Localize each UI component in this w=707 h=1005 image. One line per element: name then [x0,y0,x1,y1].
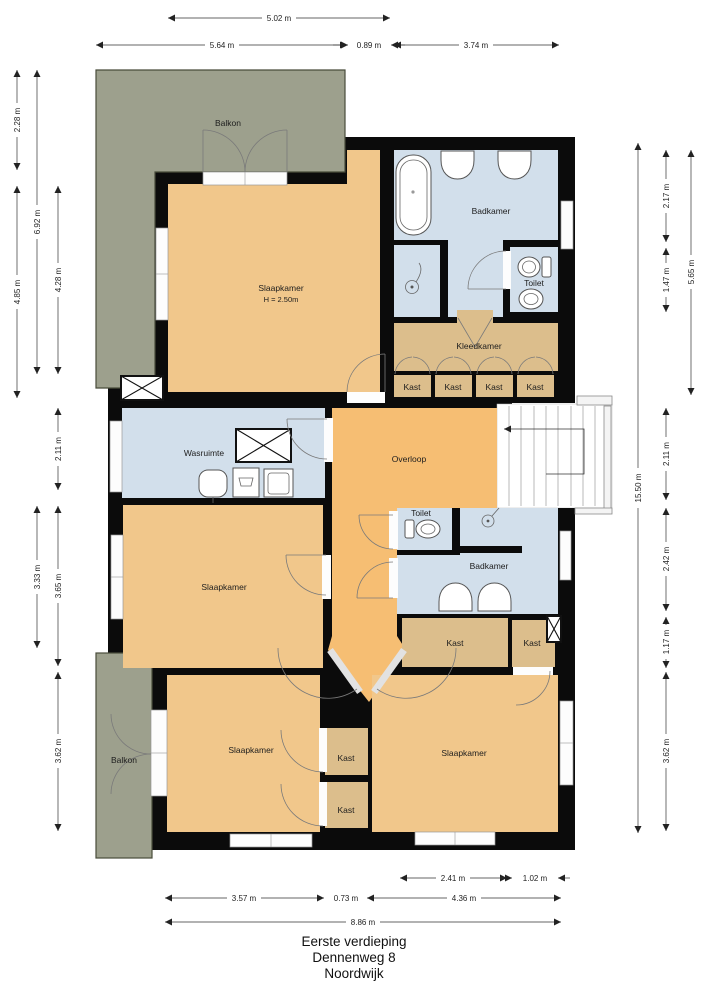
plan-title: Eerste verdieping Dennenweg 8 Noordwijk [301,934,406,981]
dim-left-2: 6.92 m [33,209,42,234]
dim-bottom-1: 2.41 m [441,874,466,883]
window [561,201,573,249]
label-slaapkamer-bottom-right: Slaapkamer [441,748,487,758]
label-kast-mid-left: Kast [446,638,464,648]
dim-bottom-6: 8.86 m [351,918,376,927]
bidet-icon [519,289,543,309]
dim-bottom-3: 3.57 m [232,894,257,903]
washer-icon [233,468,259,497]
floor-plan-page: Balkon Slaapkamer H = 2.50m Badkamer Toi… [0,0,707,1000]
dim-bottom-5: 4.36 m [452,894,477,903]
stairs-railing-right [604,406,611,510]
dim-right-8: 5.65 m [687,259,696,284]
label-badkamer-mid: Badkamer [470,561,509,571]
label-toilet-top: Toilet [524,278,544,288]
window [110,421,122,492]
dim-bottom-4: 0.73 m [334,894,359,903]
dim-left-3: 4.85 m [13,279,22,304]
dim-right-7: 3.62 m [662,738,671,763]
label-toilet-mid: Toilet [411,508,431,518]
sink-icon [478,583,511,611]
title-line-3: Noordwijk [324,966,384,981]
dim-right-1: 15.50 m [634,473,643,502]
label-kast-1: Kast [403,382,421,392]
room-kast-bottom-1 [325,728,368,775]
label-wasruimte: Wasruimte [184,448,225,458]
window [560,531,571,580]
toilet-icon [405,520,414,538]
label-kast-bottom-2: Kast [337,805,355,815]
dim-right-4: 2.11 m [662,442,671,466]
stairs-railing-bottom [575,508,612,514]
dim-top-1: 5.02 m [267,14,292,23]
dim-right-3: 1.47 m [662,267,671,292]
label-kast-4: Kast [526,382,544,392]
dim-left-7: 3.65 m [54,573,63,598]
label-kast-mid-right: Kast [523,638,541,648]
dim-left-4: 4.28 m [54,267,63,292]
stairs-railing-top [577,396,612,405]
label-slaapkamer-main: Slaapkamer [258,283,304,293]
dim-left-1: 2.28 m [13,107,22,132]
dim-top-4: 3.74 m [464,41,489,50]
title-line-2: Dennenweg 8 [312,950,395,965]
dim-right-6: 1.17 m [662,629,671,654]
label-slaapkamer-mid: Slaapkamer [201,582,247,592]
sink-icon [439,583,472,611]
label-slaapkamer-main-height: H = 2.50m [264,295,299,304]
label-kast-3: Kast [485,382,503,392]
label-balkon-bottom: Balkon [111,755,137,765]
toilet-icon [542,257,551,277]
dim-bottom-2: 1.02 m [523,874,548,883]
label-badkamer-top: Badkamer [472,206,511,216]
dim-top-3: 0.89 m [357,41,382,50]
laundry-sink-icon [199,470,227,497]
label-balkon-top: Balkon [215,118,241,128]
floor-plan-canvas: Balkon Slaapkamer H = 2.50m Badkamer Toi… [0,0,707,1000]
label-kast-2: Kast [444,382,462,392]
sink-icon [498,151,531,179]
label-kast-bottom-1: Kast [337,753,355,763]
label-kleedkamer: Kleedkamer [456,341,502,351]
dim-right-5: 2.42 m [662,546,671,571]
sink-icon [441,151,474,179]
label-overloop: Overloop [392,454,427,464]
dim-top-2: 5.64 m [210,41,235,50]
staircase [497,396,612,516]
dim-left-5: 2.11 m [54,437,63,461]
room-fills [122,150,558,832]
dim-left-8: 3.62 m [54,738,63,763]
title-line-1: Eerste verdieping [301,934,406,949]
dim-left-6: 3.33 m [33,564,42,589]
dim-right-2: 2.17 m [662,183,671,208]
label-slaapkamer-bottom-left: Slaapkamer [228,745,274,755]
